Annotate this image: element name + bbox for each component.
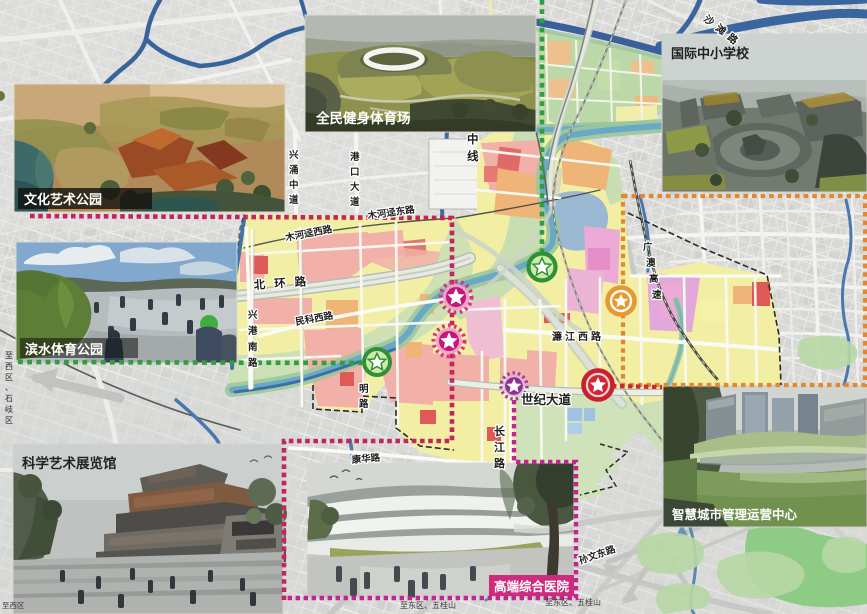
- svg-text:口: 口: [350, 167, 360, 178]
- svg-text:大: 大: [350, 181, 360, 193]
- svg-text:国际中小学校: 国际中小学校: [671, 46, 750, 61]
- svg-text:兴: 兴: [248, 309, 258, 321]
- svg-text:广: 广: [643, 241, 653, 253]
- svg-text:区: 区: [5, 416, 13, 425]
- svg-text:线: 线: [467, 149, 479, 163]
- svg-text:道: 道: [350, 196, 360, 208]
- svg-text:中: 中: [289, 179, 299, 191]
- svg-text:路: 路: [359, 398, 369, 410]
- svg-text:至: 至: [5, 351, 13, 360]
- svg-text:至西区: 至西区: [2, 601, 25, 610]
- svg-text:全民健身体育场: 全民健身体育场: [315, 110, 411, 126]
- svg-text:区: 区: [5, 373, 13, 382]
- svg-text:至东区、五桂山: 至东区、五桂山: [400, 600, 456, 610]
- svg-text:明: 明: [359, 384, 369, 395]
- svg-text:岐: 岐: [5, 404, 13, 414]
- svg-text:兴: 兴: [289, 149, 299, 161]
- svg-text:世纪大道: 世纪大道: [521, 392, 572, 407]
- svg-text:石: 石: [5, 394, 13, 403]
- svg-text:高端综合医院: 高端综合医院: [494, 579, 570, 594]
- svg-text:西: 西: [5, 362, 13, 371]
- svg-text:路: 路: [494, 456, 506, 470]
- svg-text:港: 港: [350, 151, 360, 163]
- svg-text:中: 中: [467, 132, 479, 146]
- svg-text:科学艺术展览馆: 科学艺术展览馆: [22, 455, 117, 471]
- svg-text:涌: 涌: [289, 164, 299, 176]
- svg-text:江: 江: [494, 440, 505, 454]
- svg-text:南: 南: [248, 341, 258, 353]
- svg-text:路: 路: [248, 357, 258, 369]
- svg-text:智慧城市管理运营中心: 智慧城市管理运营中心: [671, 507, 798, 522]
- svg-text:、: 、: [5, 383, 13, 392]
- svg-text:至东区、五桂山: 至东区、五桂山: [545, 597, 601, 607]
- svg-text:港: 港: [248, 325, 258, 337]
- svg-text:文化艺术公园: 文化艺术公园: [24, 192, 102, 207]
- svg-text:高: 高: [649, 273, 659, 285]
- svg-text:道: 道: [289, 194, 299, 206]
- svg-text:澳: 澳: [646, 257, 656, 269]
- svg-text:滨水体育公园: 滨水体育公园: [25, 342, 103, 357]
- svg-text:长: 长: [494, 424, 506, 438]
- svg-text:濂江西路: 濂江西路: [552, 330, 604, 343]
- svg-text:速: 速: [652, 289, 662, 301]
